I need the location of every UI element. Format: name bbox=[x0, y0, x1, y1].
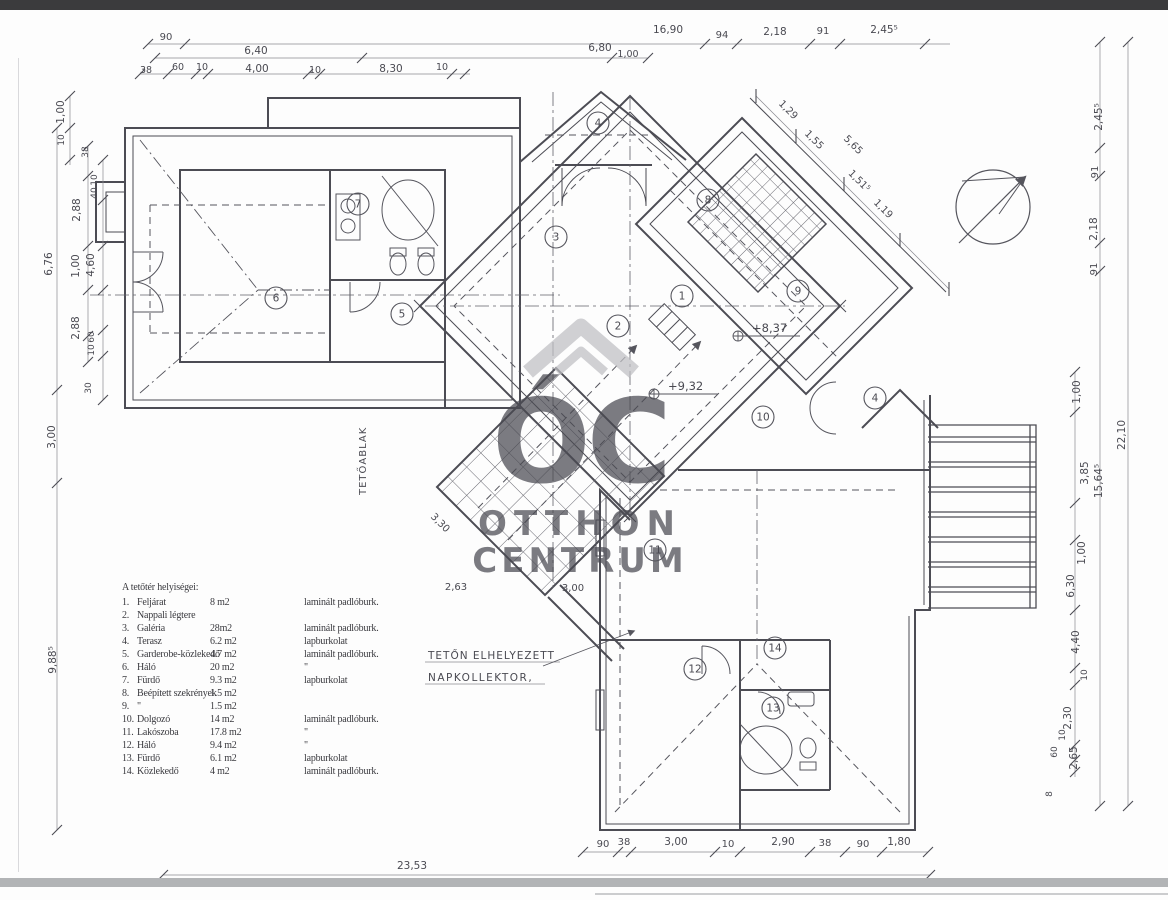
annotation-text: NAPKOLLEKTOR, bbox=[428, 672, 533, 684]
legend-row: 11.Lakószoba17.8 m2" bbox=[122, 726, 434, 739]
room-number: 9 bbox=[795, 286, 802, 298]
legend-row: 2.Nappali légtere bbox=[122, 609, 434, 622]
watermark-otthon-centrum: ÓC OTTHON CENTRUM bbox=[472, 326, 687, 581]
dimension-label: 4,60 bbox=[85, 253, 97, 276]
room-number: 1 bbox=[679, 291, 686, 303]
pergola-slats bbox=[928, 425, 1036, 608]
dimension-label: 94 bbox=[716, 30, 729, 41]
dimension-label: 4,40 bbox=[1070, 630, 1082, 653]
dimension-label: 22,10 bbox=[1116, 420, 1128, 450]
bathroom7-fixtures bbox=[336, 176, 438, 275]
dimension-label: 1,55 bbox=[802, 128, 826, 152]
dimension-label: 9,88⁵ bbox=[47, 646, 59, 674]
dimension-label: 6,80 bbox=[588, 42, 611, 54]
dimension-label: 2,45⁵ bbox=[1093, 103, 1105, 131]
dimension-label: 2,90 bbox=[771, 836, 794, 848]
walls-left-wing bbox=[96, 98, 520, 408]
dimension-label: 90 bbox=[160, 32, 173, 43]
radiator-element bbox=[649, 304, 696, 351]
scan-bottom-bar bbox=[0, 878, 1168, 887]
elevation-label: +9,32 bbox=[668, 379, 703, 393]
dimension-label: 10 bbox=[196, 62, 208, 73]
dimension-label: 6,76 bbox=[43, 252, 55, 276]
dimension-label: 40 bbox=[90, 187, 100, 199]
annotation-text: TETŐABLAK bbox=[355, 427, 369, 496]
dimension-label: 16,90 bbox=[653, 24, 683, 36]
dimension-label: 10 bbox=[722, 839, 735, 850]
legend-row: 8.Beépített szekrények1.5 m2 bbox=[122, 687, 434, 700]
dimension-label: 3,00 bbox=[562, 583, 584, 594]
dimension-label: 5,65 bbox=[841, 133, 865, 157]
dimension-label: 1,19 bbox=[871, 197, 895, 221]
dimension-label: 6,30 bbox=[1065, 574, 1077, 597]
dimension-label: 1,80 bbox=[887, 836, 910, 848]
room-number: 10 bbox=[756, 412, 769, 424]
dimension-label: 2,45⁵ bbox=[870, 24, 898, 36]
watermark-monogram: ÓC bbox=[492, 374, 668, 510]
legend-row: 12.Háló9.4 m2" bbox=[122, 739, 434, 752]
dimension-label: 2,88 bbox=[70, 316, 82, 339]
legend-row: 7.Fürdő9.3 m2lapburkolat bbox=[122, 674, 434, 687]
dimension-label: 60 bbox=[87, 331, 97, 343]
legend-row: 3.Galéria28m2laminált padlóburk. bbox=[122, 622, 434, 635]
legend-row: 10.Dolgozó14 m2laminált padlóburk. bbox=[122, 713, 434, 726]
dimension-label: 8,30 bbox=[379, 63, 402, 75]
dimension-label: 8 bbox=[1045, 791, 1055, 797]
scanned-floorplan-page: ÓC OTTHON CENTRUM 9016,906,406,801,00386… bbox=[0, 0, 1168, 900]
hip-roof-diagonals bbox=[140, 140, 330, 393]
room-legend: A tetőtér helyiségei: 1.Feljárat8 m2lami… bbox=[122, 581, 434, 778]
dimension-label: 1,29 bbox=[776, 98, 800, 122]
legend-row: 4.Terasz6.2 m2lapburkolat bbox=[122, 635, 434, 648]
legend-row: 6.Háló20 m2" bbox=[122, 661, 434, 674]
dimension-label: 38 bbox=[81, 146, 91, 158]
dimension-label: 90 bbox=[857, 839, 870, 850]
room-number-circle: 1 bbox=[671, 285, 693, 307]
legend-row: 14.Közlekedő4 m2laminált padlóburk. bbox=[122, 765, 434, 778]
dimension-label: 1,00 bbox=[1071, 380, 1083, 403]
room-number-circle: 2 bbox=[607, 315, 629, 337]
dimension-label: 10 bbox=[57, 134, 67, 146]
legend-row: 5.Garderobe-közlekedő4.7 m2laminált padl… bbox=[122, 648, 434, 661]
dimension-label: 3,00 bbox=[664, 836, 687, 848]
dimension-label: 6,40 bbox=[244, 45, 267, 57]
room-number: 11 bbox=[648, 545, 661, 557]
dimension-label: 1,00 bbox=[55, 100, 67, 123]
dimension-label: 10 bbox=[90, 174, 100, 186]
dimension-label: 10 bbox=[1058, 729, 1068, 741]
dimension-label: 15,64⁵ bbox=[1093, 464, 1105, 498]
room-number: 4 bbox=[872, 393, 879, 405]
room-number: 2 bbox=[615, 321, 622, 333]
room-number: 14 bbox=[768, 643, 782, 655]
dimension-label: 10 bbox=[1080, 669, 1090, 681]
dimension-label: 3,00 bbox=[46, 425, 58, 448]
dimension-label: 60 bbox=[172, 62, 184, 73]
dimension-label: 3,85 bbox=[1079, 461, 1091, 484]
legend-row: 1.Feljárat8 m2laminált padlóburk. bbox=[122, 596, 434, 609]
terrace-roof-top bbox=[520, 92, 686, 206]
legend-title: A tetőtér helyiségei: bbox=[122, 581, 434, 594]
room-number: 3 bbox=[553, 232, 560, 244]
room-number: 5 bbox=[399, 309, 406, 321]
dimension-label: 38 bbox=[618, 837, 631, 848]
watermark-line1: OTTHON bbox=[478, 504, 682, 544]
legend-row: 9."1.5 m2 bbox=[122, 700, 434, 713]
room-number-circle: 10 bbox=[752, 406, 774, 428]
dimension-label: 91 bbox=[1089, 263, 1100, 276]
room-number: 4 bbox=[595, 118, 602, 130]
dimension-label: 2,88 bbox=[71, 198, 83, 221]
dimension-label: 10 bbox=[87, 344, 97, 356]
north-arrow-icon bbox=[956, 170, 1030, 244]
room-number-circle: 4 bbox=[587, 112, 609, 134]
dimension-label: 30 bbox=[84, 382, 94, 394]
dimension-label: 38 bbox=[819, 838, 832, 849]
dimension-label: 38 bbox=[140, 65, 152, 76]
legend-row: 13.Fürdő6.1 m2lapburkolat bbox=[122, 752, 434, 765]
room-number-circle: 13 bbox=[762, 697, 784, 719]
legend-rows: 1.Feljárat8 m2laminált padlóburk.2.Nappa… bbox=[122, 596, 434, 778]
dimension-label: 3,30 bbox=[428, 511, 452, 535]
dimension-label: 1,00 bbox=[70, 254, 82, 277]
room-number-circle: 12 bbox=[684, 658, 706, 680]
dimension-label: 4,00 bbox=[245, 63, 268, 75]
room-number: 7 bbox=[355, 199, 362, 211]
dimension-label: 1,51⁵ bbox=[846, 168, 872, 194]
dimension-label: 2,65 bbox=[1068, 746, 1080, 769]
room-number-circle: 7 bbox=[347, 193, 369, 215]
room-number: 12 bbox=[688, 664, 701, 676]
elevation-label: +8,37 bbox=[752, 321, 787, 335]
dimension-label: 90 bbox=[597, 839, 610, 850]
room-number-circle: 3 bbox=[545, 226, 567, 248]
annotation-text: TETŐN ELHELYEZETT bbox=[427, 648, 555, 662]
dimension-label: 23,53 bbox=[397, 860, 427, 872]
scan-bottom-line bbox=[595, 893, 1168, 895]
dimension-label: 2,18 bbox=[1088, 217, 1100, 240]
dimension-label: 1,00 bbox=[1076, 541, 1088, 564]
dimension-label: 2,63 bbox=[445, 582, 467, 593]
dimension-label: 2,18 bbox=[763, 26, 786, 38]
dimension-label: 91 bbox=[817, 26, 830, 37]
room-number: 6 bbox=[273, 293, 280, 305]
dimension-label: 10 bbox=[309, 65, 321, 76]
room-number-circle: 9 bbox=[787, 280, 809, 302]
dimension-label: 2,30 bbox=[1062, 706, 1074, 729]
dimension-label: 10 bbox=[436, 62, 448, 73]
room-number: 8 bbox=[705, 195, 712, 207]
dimension-label: 1,00 bbox=[617, 49, 638, 60]
dimension-label: 60 bbox=[1050, 746, 1060, 758]
dimension-label: 91 bbox=[1090, 166, 1101, 179]
room-number-circle: 5 bbox=[391, 303, 413, 325]
room-number-circle: 4 bbox=[864, 387, 886, 409]
room-number: 13 bbox=[766, 703, 779, 715]
